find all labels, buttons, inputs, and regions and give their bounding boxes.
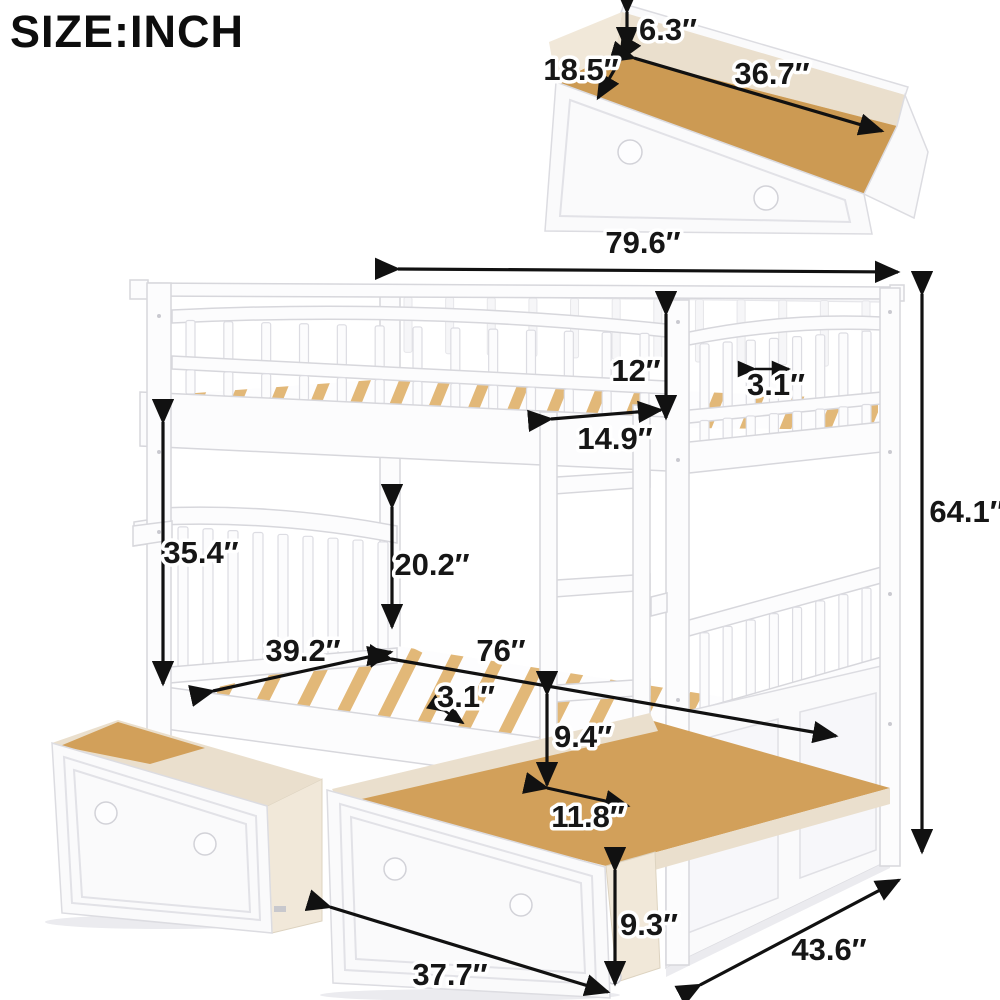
dim-overall-length-arrow [398, 269, 898, 272]
page-title: SIZE:INCH [10, 6, 244, 57]
under-bed-clearance-label: 9.4″ [554, 719, 612, 754]
upper-end-rail-label: 14.9″ [577, 421, 652, 456]
slat-gap-upper-label: 3.1″ [747, 367, 805, 402]
bunk-bed-dimension-diagram: SIZE:INCH 6.3″ 18.5″ 36.7″ 79.6″ 12″ 3.1… [0, 0, 1000, 1000]
drawer-knob [618, 140, 642, 164]
drawer-knob [510, 894, 532, 916]
top-rail [138, 283, 898, 299]
guardrail-height-label: 12″ [611, 353, 660, 388]
drawer-caster [274, 906, 286, 912]
drawer-height-label: 6.3″ [639, 12, 697, 47]
upper-section-height-label: 35.4″ [163, 535, 238, 570]
drawer-depth-label: 18.5″ [543, 52, 618, 87]
headboard-width-label: 39.2″ [265, 633, 340, 668]
drawer-length-label: 36.7″ [734, 56, 809, 91]
ladder-width-label: 11.8″ [551, 799, 625, 834]
overall-depth-label: 43.6″ [791, 932, 866, 967]
pulled-drawer-left [45, 720, 322, 933]
drawer-knob [754, 186, 778, 210]
drawer-knob [384, 858, 406, 880]
upper-side-rail [689, 422, 882, 473]
slat-gap-lower-label: 3.1″ [437, 679, 495, 714]
far-right-post [880, 288, 900, 866]
right-post-bracket [651, 593, 667, 616]
drawer-front-height-label: 9.3″ [620, 907, 678, 942]
overall-length-label: 79.6″ [605, 225, 680, 260]
lower-footboard-rail [689, 566, 885, 636]
top-rail-left-cap [130, 280, 148, 299]
sleeping-length-label: 76″ [476, 633, 525, 668]
drawer-knob [194, 833, 216, 855]
overall-height-label: 64.1″ [929, 494, 1000, 529]
storage-drawer-illustration [545, 4, 928, 234]
lower-guardrail-label: 20.2″ [394, 547, 469, 582]
drawer-knob [95, 802, 117, 824]
drawer-front-width-label: 37.7″ [412, 957, 487, 992]
